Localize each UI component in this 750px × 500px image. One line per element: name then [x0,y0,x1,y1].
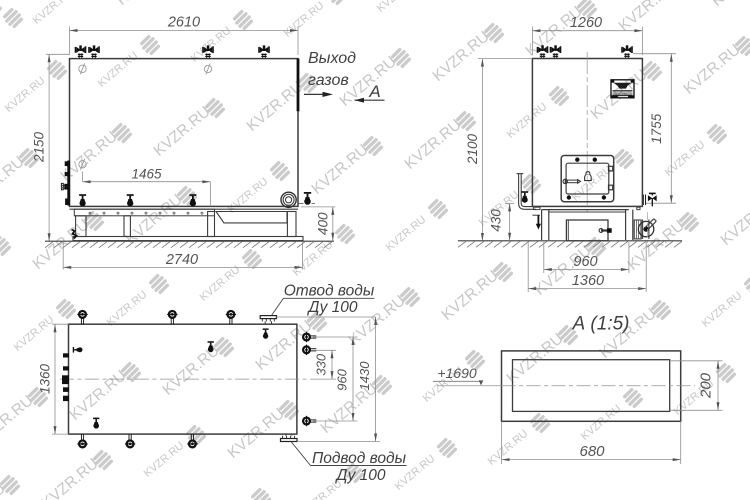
svg-text:Подвод воды: Подвод воды [312,450,407,467]
svg-text:2740: 2740 [165,252,198,268]
svg-text:1755: 1755 [649,113,664,144]
svg-text:430: 430 [488,209,503,232]
svg-text:1360: 1360 [37,363,52,394]
svg-text:960: 960 [573,254,597,270]
svg-text:Ду 100: Ду 100 [306,299,357,316]
svg-text:680: 680 [579,443,605,460]
svg-text:2610: 2610 [167,15,200,31]
svg-text:газов: газов [308,72,349,89]
svg-text:Ду 100: Ду 100 [334,467,385,484]
svg-text:960: 960 [334,368,349,390]
svg-text:400: 400 [316,212,331,235]
svg-text:1260: 1260 [570,15,602,31]
svg-text:1465: 1465 [131,167,162,182]
svg-text:Отвод воды: Отвод воды [284,283,375,300]
svg-text:1430: 1430 [357,361,372,391]
svg-text:2150: 2150 [32,131,47,163]
svg-text:А: А [368,82,380,101]
svg-text:1360: 1360 [572,273,604,289]
svg-text:+1690: +1690 [437,365,477,381]
svg-text:2100: 2100 [465,133,480,165]
svg-text:А (1:5): А (1:5) [571,314,629,335]
svg-text:200: 200 [698,372,715,399]
svg-text:Выход: Выход [308,50,356,67]
svg-text:330: 330 [313,353,328,375]
